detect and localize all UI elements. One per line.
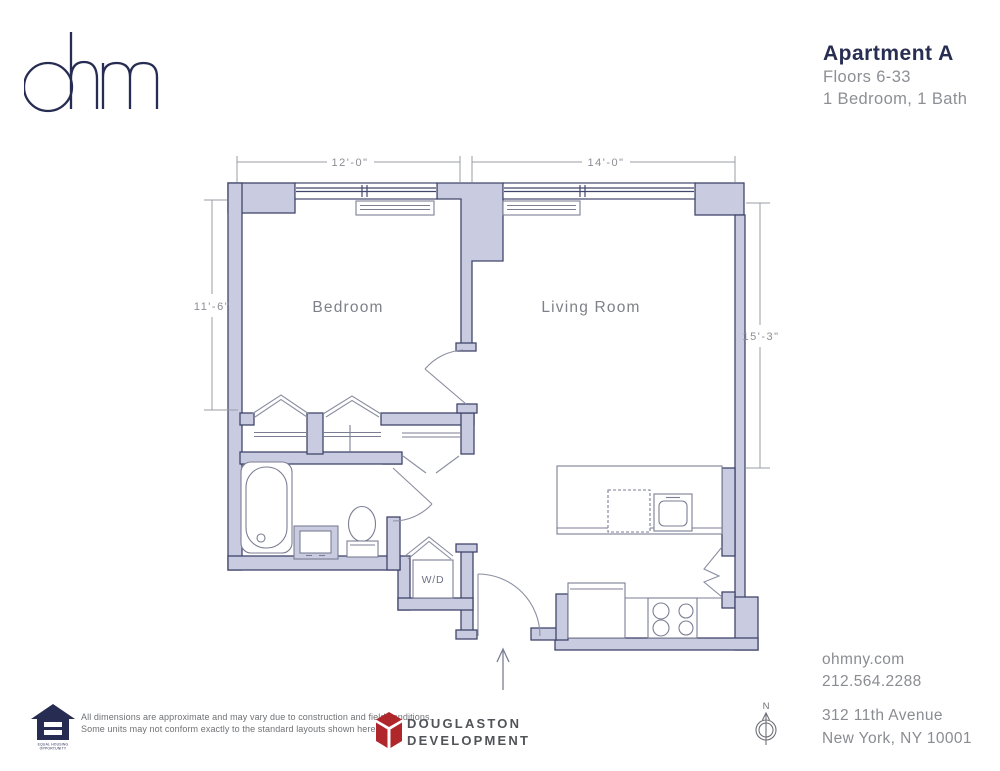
burner: [653, 603, 669, 619]
dimension-bedroom-width: 12'-0": [331, 157, 368, 169]
developer-line1: DOUGLASTON: [407, 716, 530, 733]
phone-number: 212.564.2288: [822, 671, 922, 693]
entry-arrow: [497, 649, 509, 690]
bifold-door: [326, 401, 379, 418]
website: ohmny.com: [822, 649, 922, 671]
floorplan-page: { "header": { "logo_text": "ohm", "apart…: [0, 0, 1000, 771]
bedroom-label: Bedroom: [312, 299, 383, 316]
developer-logo-text: DOUGLASTON DEVELOPMENT: [407, 716, 530, 749]
dishwasher: [608, 490, 650, 532]
cube-left-face: [376, 723, 388, 749]
refrigerator: [568, 583, 625, 638]
bedroom-door-swing: [425, 350, 463, 369]
bathroom-door-leaf: [393, 468, 432, 504]
bathtub-basin: [246, 467, 287, 548]
wall-door-cap: [456, 343, 476, 351]
dimension-bedroom-depth: 11'-6": [194, 301, 230, 313]
vanity-sink: [300, 531, 331, 553]
toilet-bowl: [349, 507, 376, 542]
wall-closet-divider: [307, 413, 323, 454]
wall-segment: [722, 592, 735, 608]
wall-segment: [695, 183, 744, 215]
kitchen-sink-basin: [659, 501, 687, 526]
radiator: [356, 201, 434, 215]
burner: [679, 621, 693, 635]
hall-closet-door: [403, 456, 426, 473]
bedroom-door-leaf: [425, 369, 466, 404]
bifold-door: [405, 537, 453, 556]
wall-segment: [531, 628, 557, 640]
hall-closet-door: [436, 456, 459, 473]
pantry-folding-door: [704, 547, 722, 597]
wall-segment: [398, 598, 473, 610]
radiator: [503, 201, 580, 215]
wall-door-cap: [457, 404, 477, 413]
wall-segment: [240, 413, 254, 425]
bifold-door: [323, 396, 381, 414]
north-compass: N: [752, 698, 782, 750]
washer-dryer-label: W/D: [422, 574, 445, 586]
cube-right-face: [391, 723, 403, 749]
equal-housing-label-line2: OPPORTUNITY: [40, 747, 67, 751]
dimension-living-depth: 15'-3": [742, 331, 779, 343]
living-room-label: Living Room: [541, 299, 640, 316]
wall-segment: [381, 413, 474, 425]
wall-door-cap: [456, 544, 477, 552]
dimension-living-width: 14'-0": [587, 157, 624, 169]
wall-segment: [722, 468, 735, 556]
address-line2: New York, NY 10001: [822, 727, 972, 750]
address: 312 11th Avenue New York, NY 10001: [822, 704, 972, 750]
wall-right: [735, 215, 745, 608]
burner: [653, 620, 669, 636]
wall-door-cap: [456, 630, 477, 639]
douglaston-logo-icon: [374, 712, 404, 750]
cube-top-face: [376, 712, 402, 727]
compass-north-label: N: [763, 701, 770, 712]
compass-icon: [756, 713, 776, 745]
burner: [679, 604, 693, 618]
wall-segment: [461, 413, 474, 454]
equal-housing-logo: EQUAL HOUSING OPPORTUNITY: [31, 704, 77, 754]
wall-segment: [228, 183, 242, 570]
wall-segment: [387, 517, 400, 570]
contact-info: ohmny.com 212.564.2288: [822, 649, 922, 693]
wall-divider: [437, 183, 503, 348]
address-line1: 312 11th Avenue: [822, 704, 972, 727]
wall-bottom: [555, 638, 758, 650]
walls: [228, 183, 758, 650]
bifold-door: [252, 395, 309, 414]
bathtub-drain: [257, 534, 265, 542]
developer-line2: DEVELOPMENT: [407, 733, 530, 750]
bifold-door: [408, 542, 451, 560]
equal-sign-bar: [44, 730, 62, 735]
bifold-door: [255, 400, 307, 418]
toilet-tank: [347, 541, 378, 557]
wall-entry: [461, 548, 473, 638]
equal-sign-bar: [44, 722, 62, 727]
entry-door-swing: [478, 574, 540, 636]
wall-segment: [556, 594, 568, 640]
